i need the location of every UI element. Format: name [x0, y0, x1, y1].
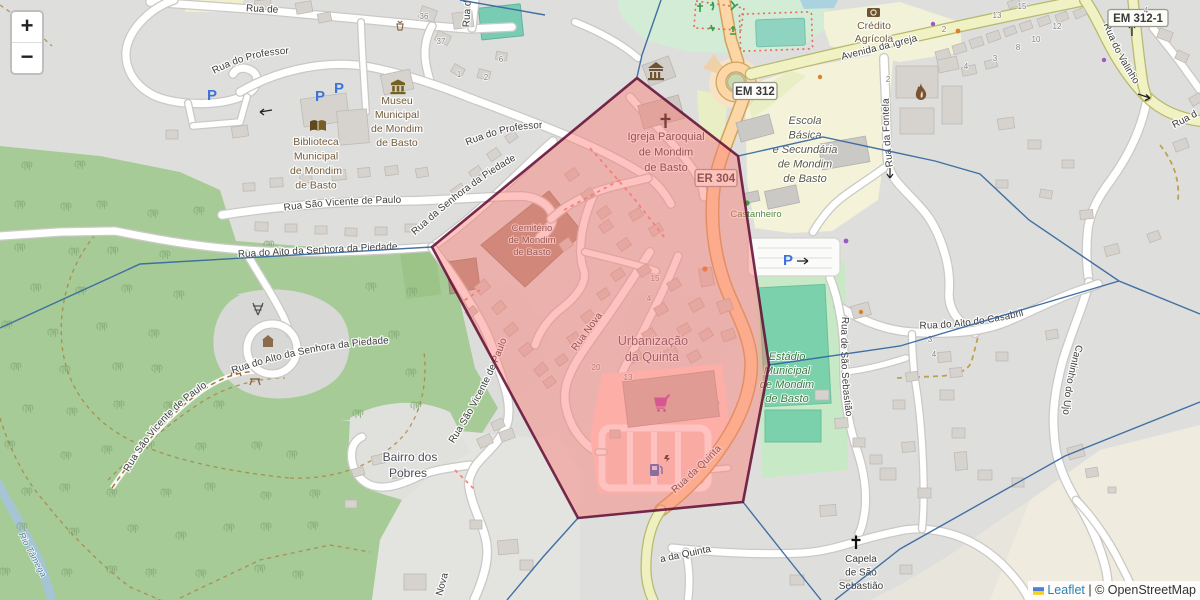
svg-text:P: P: [315, 88, 325, 105]
svg-text:Crédito: Crédito: [857, 20, 891, 32]
svg-text:de São: de São: [845, 568, 877, 579]
svg-text:Municipal: Municipal: [375, 109, 419, 121]
svg-text:13: 13: [993, 11, 1002, 20]
svg-text:de Basto: de Basto: [295, 180, 337, 192]
svg-text:de Basto: de Basto: [783, 173, 826, 185]
svg-text:Bairro dos: Bairro dos: [383, 450, 438, 464]
svg-text:Sebastião: Sebastião: [839, 581, 884, 592]
svg-text:Agrícola: Agrícola: [855, 33, 894, 45]
svg-text:P: P: [207, 87, 217, 104]
svg-text:de Mondim: de Mondim: [760, 379, 814, 391]
svg-text:Municipal: Municipal: [294, 151, 338, 163]
svg-text:Escola: Escola: [788, 115, 821, 127]
svg-text:2: 2: [886, 75, 891, 84]
svg-text:6: 6: [499, 55, 504, 64]
svg-text:Rua de: Rua de: [246, 3, 279, 16]
svg-text:37: 37: [437, 37, 446, 46]
svg-text:de Mondim: de Mondim: [778, 159, 832, 171]
svg-text:de Mondim: de Mondim: [371, 123, 423, 135]
svg-text:10: 10: [1032, 35, 1041, 44]
svg-text:Capela: Capela: [845, 554, 877, 565]
svg-text:de Basto: de Basto: [765, 393, 808, 405]
svg-text:4: 4: [932, 350, 937, 359]
svg-text:Rua d: Rua d: [461, 0, 473, 27]
svg-text:Municipal: Municipal: [764, 365, 811, 377]
svg-text:de Basto: de Basto: [376, 137, 418, 149]
svg-text:4: 4: [1144, 6, 1149, 15]
svg-text:2: 2: [484, 73, 489, 82]
svg-text:12: 12: [1053, 22, 1062, 31]
svg-text:8: 8: [1016, 43, 1021, 52]
svg-text:1: 1: [457, 70, 462, 79]
svg-text:Museu: Museu: [381, 95, 413, 107]
svg-text:EM 312-1: EM 312-1: [1113, 13, 1163, 25]
svg-text:Pobres: Pobres: [389, 466, 427, 480]
svg-text:15: 15: [1018, 2, 1027, 11]
svg-text:P: P: [783, 252, 793, 269]
svg-text:2: 2: [942, 25, 947, 34]
svg-text:Biblioteca: Biblioteca: [293, 136, 339, 148]
svg-text:3: 3: [993, 54, 998, 63]
svg-text:36: 36: [420, 12, 429, 21]
svg-text:de Mondim: de Mondim: [290, 165, 342, 177]
svg-text:Básica: Básica: [788, 130, 821, 142]
svg-text:4: 4: [964, 62, 969, 71]
svg-text:EM 312: EM 312: [735, 86, 775, 98]
svg-text:P: P: [334, 80, 344, 97]
